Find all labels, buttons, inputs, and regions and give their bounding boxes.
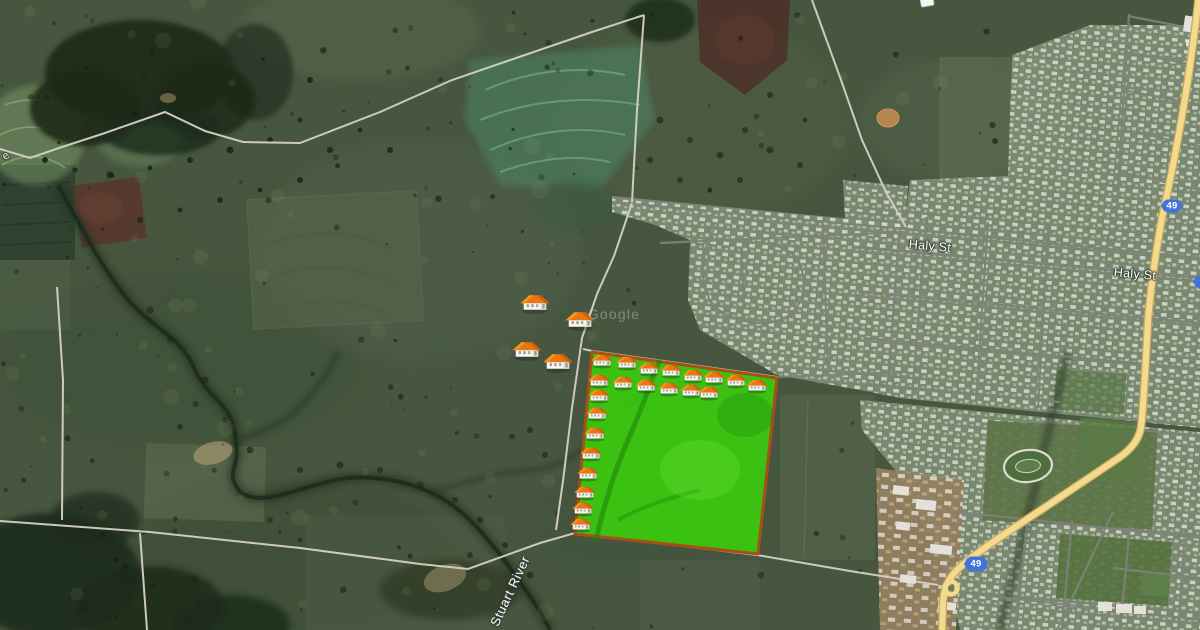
satellite-imagery: [0, 0, 1200, 630]
satellite-map[interactable]: Haly St Haly St Stuart River Google e 49…: [0, 0, 1200, 630]
